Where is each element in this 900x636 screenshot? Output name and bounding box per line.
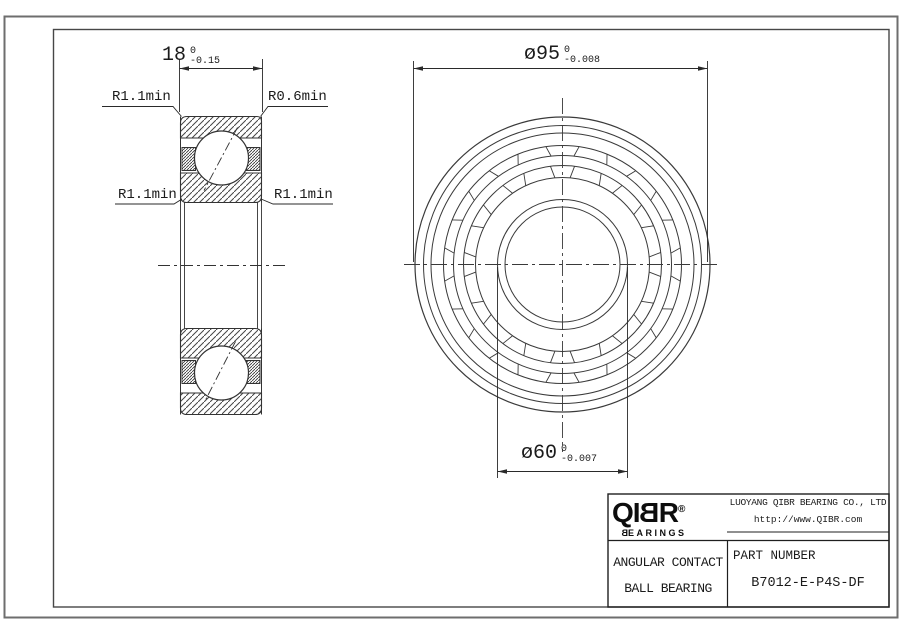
logo-subtitle: BEARINGS bbox=[619, 528, 687, 538]
arrowhead bbox=[253, 66, 263, 70]
product-line-2: BALL BEARING bbox=[609, 576, 727, 602]
arrowhead bbox=[698, 66, 708, 70]
arrowhead bbox=[414, 66, 424, 70]
company-name: LUOYANG QIBR BEARING CO., LTD bbox=[727, 497, 889, 508]
section-view bbox=[158, 117, 286, 415]
od-dimension: ø95 0 -0.008 bbox=[524, 45, 600, 66]
cage-section bbox=[182, 148, 196, 171]
engineering-drawing-sheet: 18 0 -0.15 R1.1min R0.6min R1.1min R1.1m… bbox=[0, 0, 900, 636]
od-dimension-tolerance: 0 -0.008 bbox=[564, 46, 600, 66]
company-website: http://www.QIBR.com bbox=[727, 514, 889, 525]
width-dimension: 18 0 -0.15 bbox=[162, 46, 220, 67]
bore-dimension-value: ø60 bbox=[521, 444, 557, 464]
part-number-label: PART NUMBER bbox=[733, 549, 816, 563]
radius-label-mid-right: R1.1min bbox=[274, 188, 333, 202]
arrowhead bbox=[618, 469, 628, 473]
part-number-value: B7012-E-P4S-DF bbox=[727, 576, 889, 591]
bore-dimension-tolerance: 0 -0.007 bbox=[561, 445, 597, 465]
cage-section bbox=[182, 361, 196, 384]
company-logo: QIBR® BEARINGS bbox=[612, 498, 687, 538]
front-view bbox=[404, 98, 721, 452]
radius-label-top-right: R0.6min bbox=[268, 90, 327, 104]
product-line-1: ANGULAR CONTACT bbox=[609, 550, 727, 576]
radius-label-top-left: R1.1min bbox=[112, 90, 171, 104]
arrowhead bbox=[498, 469, 508, 473]
product-description: ANGULAR CONTACT BALL BEARING bbox=[609, 550, 727, 602]
width-dimension-value: 18 bbox=[162, 46, 186, 66]
logo-wordmark: QIBR® bbox=[612, 498, 687, 525]
ball-lower bbox=[195, 346, 249, 400]
bore-dimension: ø60 0 -0.007 bbox=[521, 444, 597, 465]
od-dimension-value: ø95 bbox=[524, 45, 560, 65]
width-dimension-tolerance: 0 -0.15 bbox=[190, 47, 220, 67]
registered-mark: ® bbox=[678, 504, 685, 515]
radius-label-mid-left: R1.1min bbox=[118, 188, 177, 202]
